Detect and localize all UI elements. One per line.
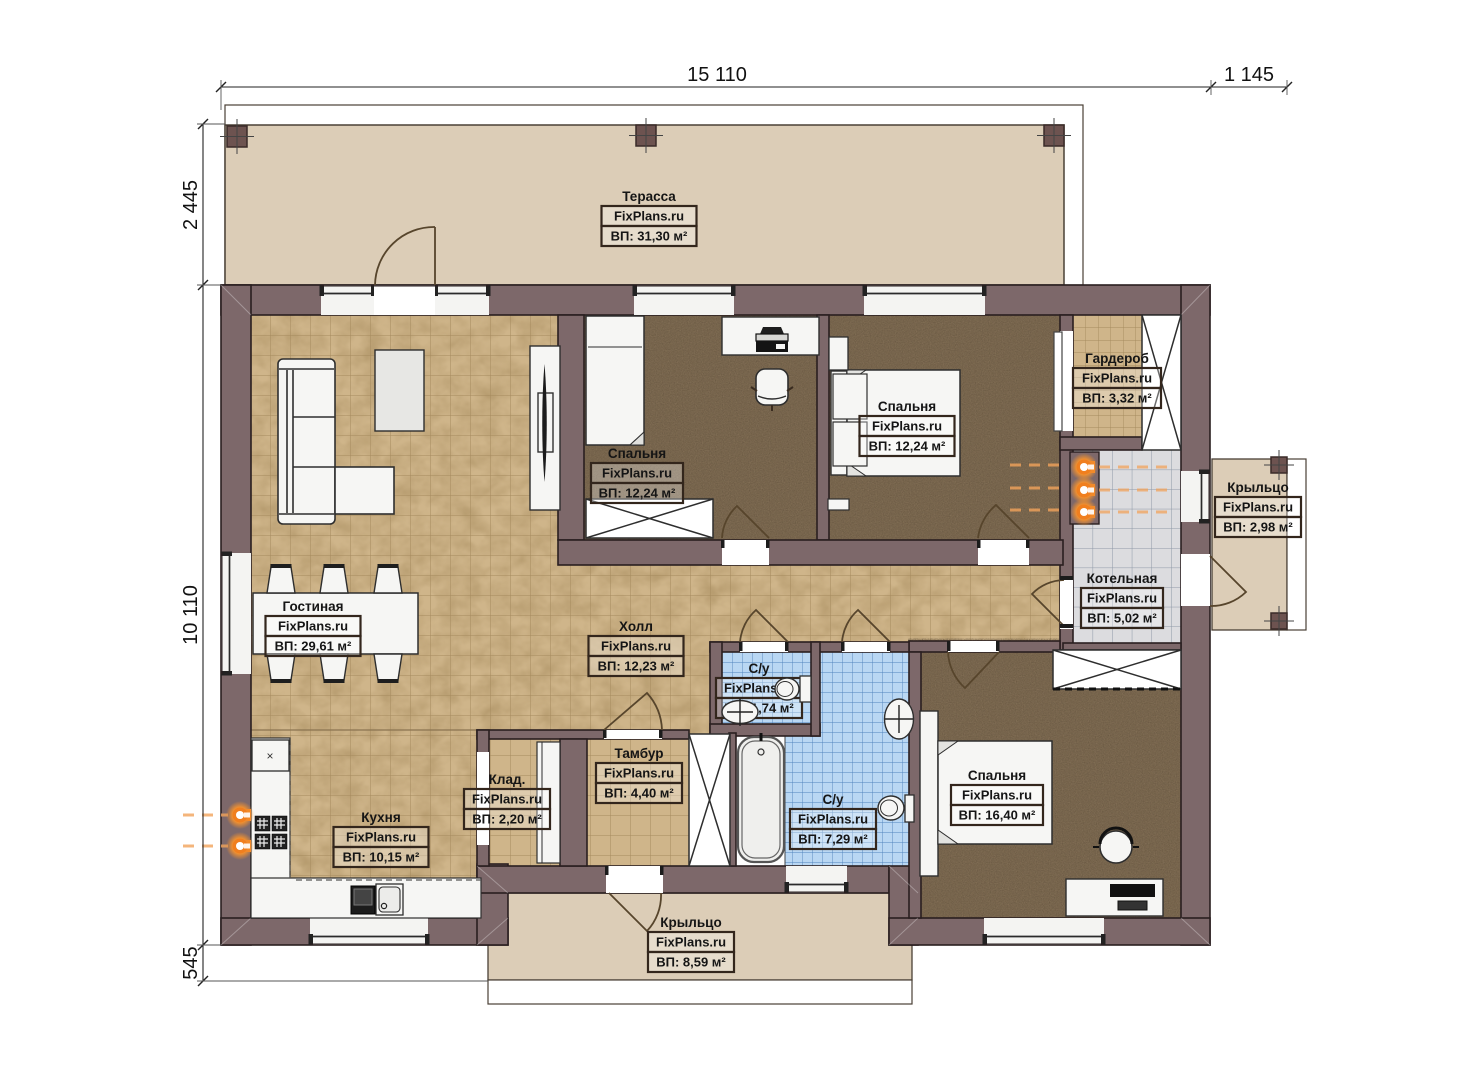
svg-text:Клад.: Клад. xyxy=(489,772,526,787)
svg-text:10 110: 10 110 xyxy=(180,585,202,645)
svg-text:FixPlans.ru: FixPlans.ru xyxy=(601,639,671,654)
svg-text:Тамбур: Тамбур xyxy=(615,746,664,761)
svg-text:ВП: 8,59 м²: ВП: 8,59 м² xyxy=(656,955,726,970)
svg-text:15 110: 15 110 xyxy=(687,64,747,86)
svg-text:ВП: 7,29 м²: ВП: 7,29 м² xyxy=(798,832,868,847)
svg-text:ВП: 29,61 м²: ВП: 29,61 м² xyxy=(275,639,352,654)
svg-text:Спальня: Спальня xyxy=(968,768,1026,783)
svg-text:×: × xyxy=(266,749,273,763)
svg-text:Котельная: Котельная xyxy=(1087,571,1158,586)
svg-text:Гардероб: Гардероб xyxy=(1085,351,1149,366)
svg-text:ВП: 16,40 м²: ВП: 16,40 м² xyxy=(959,808,1036,823)
svg-text:Спальня: Спальня xyxy=(878,399,936,414)
svg-text:FixPlans.ru: FixPlans.ru xyxy=(346,830,416,845)
svg-text:ВП: 2,98 м²: ВП: 2,98 м² xyxy=(1223,520,1293,535)
svg-text:FixPlans.ru: FixPlans.ru xyxy=(962,788,1032,803)
svg-text:Терасса: Терасса xyxy=(622,189,676,204)
svg-text:ВП: 12,24 м²: ВП: 12,24 м² xyxy=(869,439,946,454)
svg-text:545: 545 xyxy=(180,946,202,979)
svg-text:Гостиная: Гостиная xyxy=(282,599,343,614)
svg-text:FixPlans.ru: FixPlans.ru xyxy=(614,209,684,224)
svg-text:ВП: 2,20 м²: ВП: 2,20 м² xyxy=(472,812,542,827)
svg-text:FixPlans.ru: FixPlans.ru xyxy=(798,812,868,827)
svg-text:Крыльцо: Крыльцо xyxy=(660,915,721,930)
svg-text:FixPlans.ru: FixPlans.ru xyxy=(604,766,674,781)
svg-text:FixPlans.ru: FixPlans.ru xyxy=(1082,371,1152,386)
svg-text:Спальня: Спальня xyxy=(608,446,666,461)
svg-text:ВП: 4,40 м²: ВП: 4,40 м² xyxy=(604,786,674,801)
svg-text:ВП: 12,23 м²: ВП: 12,23 м² xyxy=(598,659,675,674)
svg-text:FixPlans.ru: FixPlans.ru xyxy=(472,792,542,807)
svg-text:ВП: 31,30 м²: ВП: 31,30 м² xyxy=(611,229,688,244)
svg-text:FixPlans.ru: FixPlans.ru xyxy=(1087,591,1157,606)
svg-text:FixPlans.ru: FixPlans.ru xyxy=(872,419,942,434)
svg-text:Крыльцо: Крыльцо xyxy=(1227,480,1288,495)
svg-text:Холл: Холл xyxy=(619,619,653,634)
svg-text:ВП: 10,15 м²: ВП: 10,15 м² xyxy=(343,850,420,865)
svg-text:FixPlans.ru: FixPlans.ru xyxy=(278,619,348,634)
svg-text:ВП: 5,02 м²: ВП: 5,02 м² xyxy=(1087,611,1157,626)
svg-text:FixPlans.ru: FixPlans.ru xyxy=(602,466,672,481)
svg-text:ВП: 3,32 м²: ВП: 3,32 м² xyxy=(1082,391,1152,406)
svg-text:С/у: С/у xyxy=(748,661,770,676)
svg-text:Кухня: Кухня xyxy=(361,810,400,825)
svg-text:ВП: 12,24 м²: ВП: 12,24 м² xyxy=(599,486,676,501)
svg-text:2 445: 2 445 xyxy=(180,180,202,230)
svg-text:FixPlans.ru: FixPlans.ru xyxy=(1223,500,1293,515)
svg-text:1 145: 1 145 xyxy=(1224,64,1274,86)
svg-text:FixPlans.ru: FixPlans.ru xyxy=(656,935,726,950)
svg-text:С/у: С/у xyxy=(822,792,844,807)
